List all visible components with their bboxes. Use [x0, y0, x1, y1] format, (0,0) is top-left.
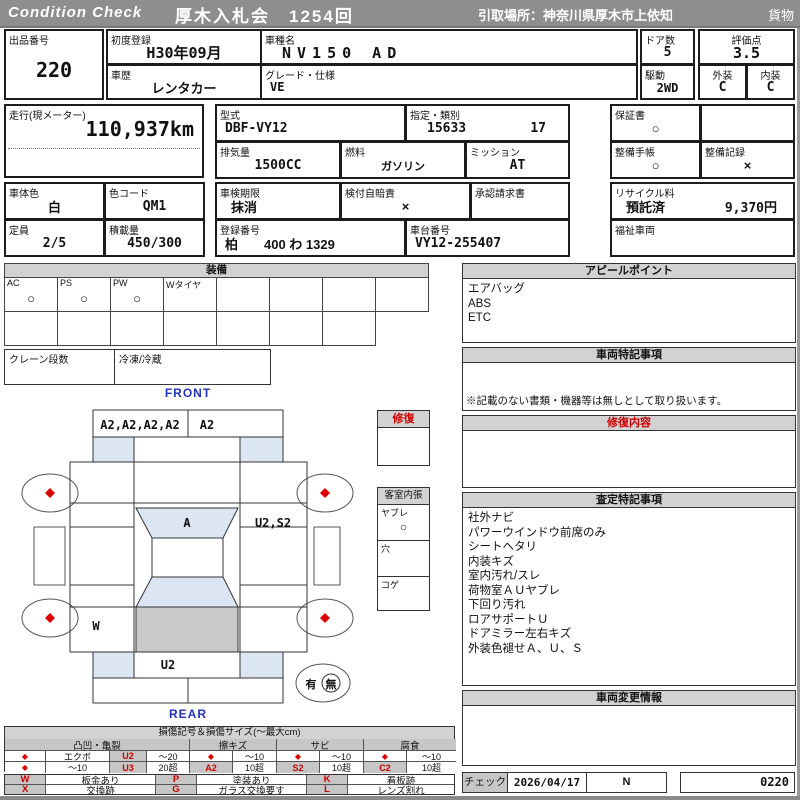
- field-first-registration: 初度登録 H30年09月: [106, 29, 262, 65]
- legend-cell: ～10: [46, 762, 110, 773]
- field-value: [378, 550, 429, 576]
- pickup-location: 引取場所：神奈川県厚木市上依知: [478, 5, 673, 24]
- panel-body: [463, 431, 795, 437]
- legend-cell: 交換跡: [46, 785, 156, 794]
- field-displacement: 排気量 1500CC: [215, 141, 341, 179]
- field-value: 2/5: [6, 232, 103, 255]
- legend-cell: 看板跡: [348, 775, 454, 785]
- legend-code: S2: [277, 762, 320, 773]
- car-damage-diagram: A2,A2,A2,A2 A2 A U2,S2 W U2 有: [0, 398, 360, 708]
- diamond-mark-icon: ◆: [364, 751, 407, 762]
- equipment-cell-empty: [216, 311, 270, 346]
- legend-group: 擦キズ: [190, 739, 277, 751]
- field-lot-number: 出品番号 220: [4, 29, 104, 100]
- field-drive: 駆動 2WD: [640, 64, 695, 100]
- spare-yes-label: 有: [306, 677, 317, 691]
- legend-code: U2: [110, 751, 147, 762]
- field-label: 冷凍/冷蔵: [119, 351, 162, 366]
- panel-header: 査定特記事項: [463, 493, 795, 508]
- field-model-code: 型式 DBF-VY12: [215, 104, 406, 142]
- field-value: ○: [612, 154, 699, 177]
- legend-cell: ガラス交換要す: [197, 785, 307, 794]
- field-value: H30年09月: [108, 42, 260, 63]
- field-body-color: 車体色 白: [4, 182, 105, 220]
- check-label: チェック: [462, 772, 508, 793]
- front-corner-right: [240, 437, 283, 462]
- field-blank: [700, 104, 795, 142]
- page-bottom-edge: [0, 796, 800, 800]
- legend-cell: ～20: [147, 751, 190, 762]
- field-value: [164, 286, 216, 311]
- legend-code: A2: [190, 762, 233, 773]
- equipment-cell-empty: [322, 311, 376, 346]
- field-value: 110,937km: [6, 116, 202, 142]
- panel-header: アピールポイント: [463, 264, 795, 279]
- field-value: AT: [467, 154, 568, 177]
- legend-cell: 20超: [147, 762, 190, 773]
- equipment-cell-empty: [110, 311, 164, 346]
- field-warranty-book: 保証書 ○: [610, 104, 701, 142]
- cabin-lining-box: 客室内張 ヤブレ ○ 穴 コゲ: [377, 487, 430, 611]
- legend-cell: 10超: [407, 762, 456, 773]
- field-value: [378, 586, 429, 612]
- panel-body: [463, 706, 795, 712]
- field-value: 抹消: [217, 195, 339, 218]
- spare-tire-indicator: [296, 664, 350, 702]
- field-load-capacity: 積載量 450/300: [104, 219, 205, 257]
- divider: [114, 350, 115, 384]
- field-registration-number: 登録番号 柏 400 わ 1329: [215, 219, 406, 257]
- spare-no-label: 無: [326, 677, 337, 691]
- panel-header: 修復内容: [463, 416, 795, 431]
- equipment-cell-ps: PS○: [57, 277, 111, 312]
- front-corner-left: [93, 437, 134, 462]
- legend-code: X: [5, 785, 46, 794]
- diamond-mark-icon: ◆: [190, 751, 233, 762]
- running-board-right: [314, 527, 340, 585]
- equipment-cell-empty: [269, 277, 323, 312]
- field-value: ×: [342, 195, 469, 218]
- rear-panel: [134, 652, 240, 678]
- cabin-row-tear: ヤブレ ○: [378, 505, 429, 541]
- repair-header: 修復: [378, 411, 429, 428]
- field-value: [472, 195, 568, 218]
- legend-cell: レンズ割れ: [348, 785, 454, 794]
- auction-title: 厚木入札会 1254回: [175, 2, 354, 27]
- field-class-number: 指定・類別 15633 17: [405, 104, 570, 142]
- assessment-notes-panel: 査定特記事項 社外ナビ パワーウインドウ前席のみ シートヘタリ 内装キズ 室内汚…: [462, 492, 796, 686]
- field-interior-grade: 内装 C: [746, 64, 795, 100]
- field-value: DBF-VY12: [217, 117, 404, 140]
- panel-header: 車両特記事項: [463, 348, 795, 363]
- field-color-code: 色コード QM1: [104, 182, 205, 220]
- equipment-cell-empty: [57, 311, 111, 346]
- field-welfare-vehicle: 福祉車両: [610, 219, 795, 257]
- header-bar: Condition Check 厚木入札会 1254回 引取場所：神奈川県厚木市…: [0, 0, 800, 28]
- field-value: 1500CC: [217, 154, 339, 177]
- field-chassis-number: 車台番号 VY12-255407: [405, 219, 570, 257]
- damage-code-front-bumper-right: A2: [200, 418, 214, 432]
- legend-code: K: [307, 775, 348, 785]
- field-value: VY12-255407: [407, 232, 568, 255]
- equipment-cell-wtire: Wタイヤ: [163, 277, 217, 312]
- field-value: ガソリン: [342, 154, 464, 177]
- rear-corner-right: [240, 652, 283, 678]
- field-doors: ドア数 5: [640, 29, 695, 65]
- legend-cell: ～10: [233, 751, 277, 762]
- cabin-header: 客室内張: [378, 488, 429, 505]
- field-value: 柏 400 わ 1329: [217, 232, 404, 255]
- cargo-area: [136, 607, 238, 652]
- cabin-row-hole: 穴: [378, 541, 429, 577]
- repair-detail-panel: 修復内容: [462, 415, 796, 488]
- field-value: 220: [6, 42, 102, 98]
- equipment-cell-pw: PW○: [110, 277, 164, 312]
- field-label: クレーン段数: [9, 351, 69, 366]
- legend-code: P: [156, 775, 197, 785]
- diamond-mark-icon: ◆: [5, 751, 46, 762]
- legend-group: サビ: [277, 739, 364, 751]
- legend-cell: ～10: [320, 751, 364, 762]
- field-value: 白: [6, 195, 103, 218]
- repair-box: 修復: [377, 410, 430, 466]
- check-date: 2026/04/17: [507, 772, 587, 793]
- equipment-cell-empty: [4, 311, 58, 346]
- legend-group: 腐食: [364, 739, 456, 751]
- equipment-cell-empty: [163, 311, 217, 346]
- field-value-2: 17: [506, 117, 554, 140]
- rear-corner-left: [93, 652, 134, 678]
- repair-content: [378, 428, 429, 466]
- field-approval-request: 承認請求書: [470, 182, 570, 220]
- field-transmission: ミッション AT: [465, 141, 570, 179]
- damage-code-right-side: U2,S2: [255, 516, 291, 530]
- damage-legend-table: 損傷記号＆損傷サイズ(～最大cm) 凸凹・亀裂 擦キズ サビ 腐食 ◆ エクボ …: [4, 726, 455, 772]
- field-value: NV150 AD: [262, 42, 636, 63]
- equipment-header: 装備: [4, 263, 429, 278]
- damage-code-rear-panel: U2: [161, 658, 175, 672]
- field-history: 車歴 レンタカー: [106, 64, 262, 100]
- field-value-2: 9,370円: [687, 195, 785, 218]
- marks-legend-table: W 板金あり P 塗装あり K 看板跡 X 交換跡 G ガラス交換要す L レン…: [4, 774, 455, 795]
- field-inspection-expiry: 車検期限 抹消: [215, 182, 341, 220]
- vehicle-notes-panel: 車両特記事項 ※記載のない書類・機器等は無しとして取り扱います。: [462, 347, 796, 411]
- field-model-name: 車種名 NV150 AD: [260, 29, 638, 65]
- legend-cell: 10超: [233, 762, 277, 773]
- field-fuel: 燃料 ガソリン: [340, 141, 466, 179]
- field-maintenance-record: 整備記録 ×: [700, 141, 795, 179]
- field-score: 評価点 3.5: [698, 29, 795, 65]
- field-capacity: 定員 2/5: [4, 219, 105, 257]
- legend-cell: 板金あり: [46, 775, 156, 785]
- field-maintenance-book: 整備手帳 ○: [610, 141, 701, 179]
- legend-code: W: [5, 775, 46, 785]
- panel-note: ※記載のない書類・機器等は無しとして取り扱います。: [466, 393, 727, 408]
- appeal-points-panel: アピールポイント エアバッグ ABS ETC: [462, 263, 796, 343]
- panel-body: 社外ナビ パワーウインドウ前席のみ シートヘタリ 内装キズ 室内汚れ/スレ 荷物…: [463, 508, 795, 659]
- legend-cell: 10超: [320, 762, 364, 773]
- cabin-row-burn: コゲ: [378, 577, 429, 612]
- field-value: [612, 232, 793, 255]
- field-grade: グレード・仕様 VE: [260, 64, 638, 100]
- field-mileage: 走行(現メーター) 110,937km: [4, 104, 204, 178]
- legend-code: G: [156, 785, 197, 794]
- brand-logo: Condition Check: [8, 4, 142, 21]
- field-value: 2WD: [642, 77, 693, 98]
- equipment-cell-ac: AC○: [4, 277, 58, 312]
- field-value: ×: [702, 154, 793, 177]
- running-board-left: [34, 527, 65, 585]
- change-info-panel: 車両変更情報: [462, 690, 796, 766]
- vehicle-category: 貨物: [768, 5, 794, 24]
- damage-code-left-rear: W: [92, 619, 100, 633]
- legend-cell: 塗装あり: [197, 775, 307, 785]
- field-value: レンタカー: [108, 77, 260, 98]
- legend-group: 凸凹・亀裂: [5, 739, 190, 751]
- check-value: N: [586, 772, 667, 793]
- legend-code: U3: [110, 762, 147, 773]
- field-value: QM1: [106, 195, 203, 218]
- damage-code-front-bumper-left: A2,A2,A2,A2: [100, 418, 179, 432]
- equipment-cell-empty: [216, 277, 270, 312]
- panel-body: エアバッグ ABS ETC: [463, 279, 795, 329]
- legend-code: L: [307, 785, 348, 794]
- field-value: 5: [642, 42, 693, 63]
- diamond-mark-icon: ◆: [277, 751, 320, 762]
- legend-cell: ～10: [407, 751, 456, 762]
- roof: [152, 538, 223, 577]
- condition-check-sheet: Condition Check 厚木入札会 1254回 引取場所：神奈川県厚木市…: [0, 0, 800, 800]
- field-insurance: 検付自賠責 ×: [340, 182, 471, 220]
- damage-code-windshield: A: [183, 516, 191, 530]
- field-value: ○: [612, 117, 699, 140]
- field-value: ○: [111, 286, 163, 311]
- equipment-cell-empty: [322, 277, 376, 312]
- front-panel: [134, 437, 240, 462]
- field-value: 450/300: [106, 232, 203, 255]
- equipment-cell-empty: [375, 277, 429, 312]
- field-value: ○: [378, 514, 429, 540]
- field-value: C: [748, 77, 793, 98]
- diagram-rear-label: REAR: [118, 707, 258, 721]
- legend-code: C2: [364, 762, 407, 773]
- check-number: 0220: [680, 772, 795, 793]
- field-value: ○: [5, 286, 57, 311]
- equipment-cell-empty: [269, 311, 323, 346]
- panel-header: 車両変更情報: [463, 691, 795, 706]
- field-value: ○: [58, 286, 110, 311]
- diamond-mark-icon: ◆: [5, 762, 46, 773]
- rear-window: [136, 577, 238, 607]
- legend-cell: エクボ: [46, 751, 110, 762]
- crane-fridge-box: クレーン段数 冷凍/冷蔵: [4, 349, 271, 385]
- field-value: VE: [262, 75, 636, 98]
- divider: [8, 148, 200, 149]
- field-value: 3.5: [700, 42, 793, 63]
- field-recycle-fee: リサイクル料 預託済 9,370円: [610, 182, 795, 220]
- field-value: C: [700, 77, 745, 98]
- field-exterior-grade: 外装 C: [698, 64, 747, 100]
